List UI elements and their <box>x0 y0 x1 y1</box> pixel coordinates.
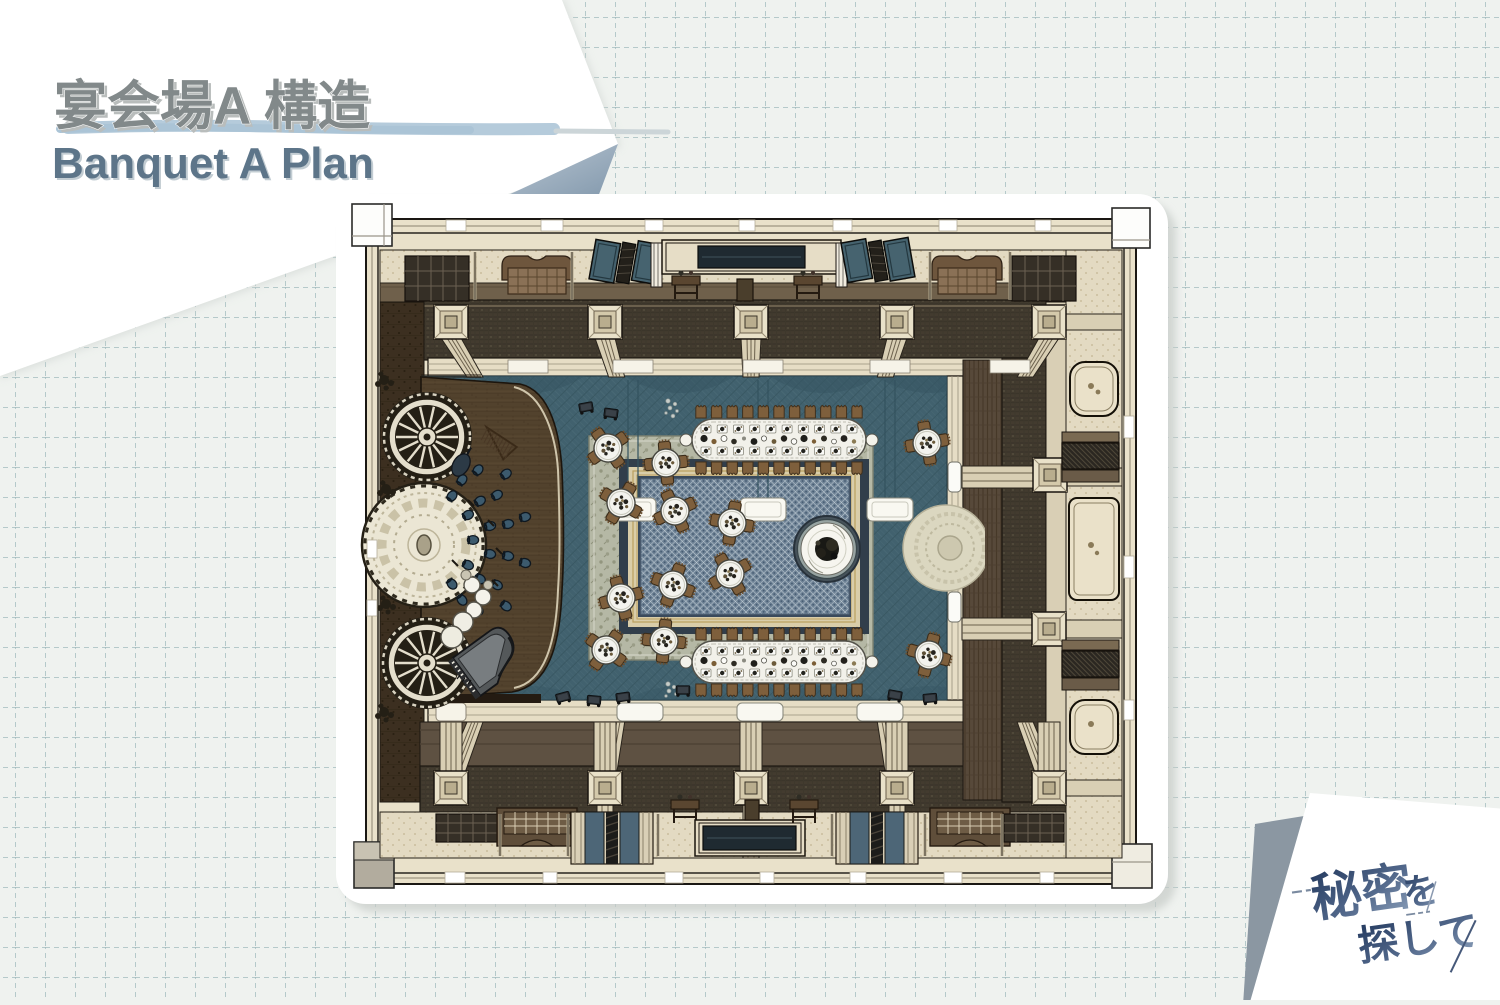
svg-text:Banquet A Plan: Banquet A Plan <box>52 139 374 188</box>
svg-text:を: を <box>1400 868 1441 914</box>
svg-text:宴会場A 構造: 宴会場A 構造 <box>54 76 370 136</box>
